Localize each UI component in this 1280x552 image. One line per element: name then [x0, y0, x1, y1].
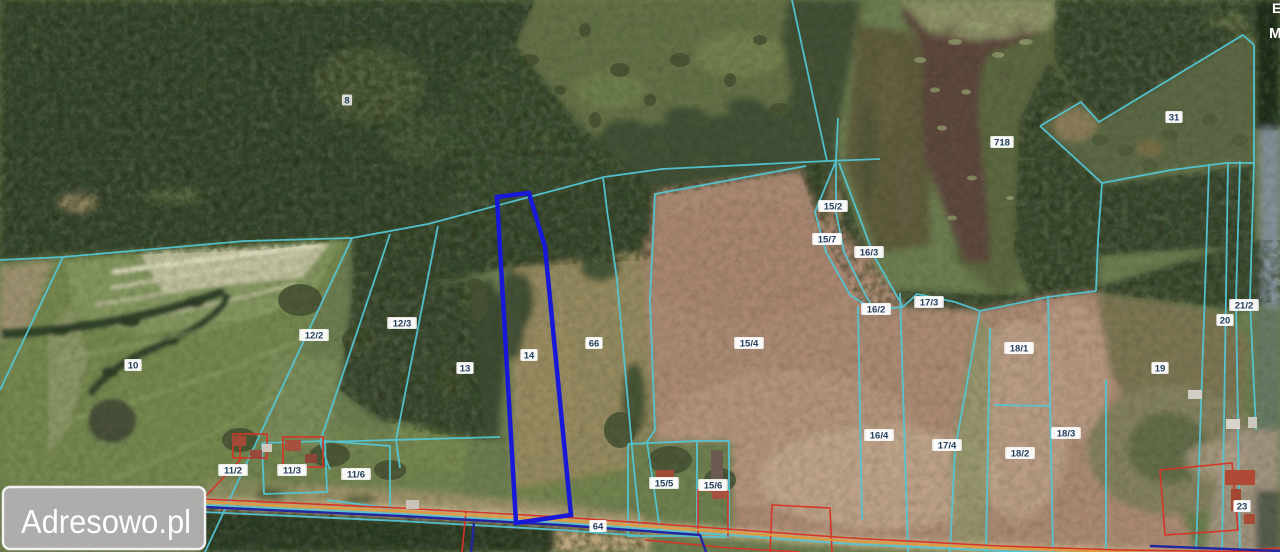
- svg-text:16/2: 16/2: [867, 305, 886, 316]
- svg-text:17/3: 17/3: [920, 298, 939, 309]
- svg-text:14: 14: [524, 351, 535, 362]
- svg-text:15/6: 15/6: [704, 481, 723, 492]
- svg-text:23: 23: [1237, 502, 1248, 513]
- svg-text:E: E: [1272, 0, 1280, 16]
- svg-text:16/3: 16/3: [860, 248, 879, 259]
- svg-text:18/1: 18/1: [1010, 344, 1029, 355]
- svg-text:17/4: 17/4: [938, 441, 957, 452]
- svg-text:19: 19: [1155, 364, 1166, 375]
- svg-text:21/2: 21/2: [1235, 301, 1254, 312]
- svg-text:15/7: 15/7: [818, 235, 837, 246]
- svg-text:31: 31: [1169, 113, 1180, 124]
- svg-text:11/3: 11/3: [283, 466, 301, 477]
- svg-text:12/3: 12/3: [393, 319, 412, 330]
- svg-text:12/2: 12/2: [305, 331, 324, 342]
- svg-text:20: 20: [1220, 316, 1231, 327]
- svg-text:718: 718: [994, 138, 1010, 149]
- svg-text:11/6: 11/6: [347, 470, 365, 481]
- svg-text:13: 13: [460, 364, 471, 375]
- svg-text:16/4: 16/4: [870, 431, 889, 442]
- svg-text:18/2: 18/2: [1011, 449, 1030, 460]
- svg-text:15/4: 15/4: [740, 339, 759, 350]
- svg-text:15/5: 15/5: [655, 479, 674, 490]
- svg-text:18/3: 18/3: [1057, 429, 1076, 440]
- svg-text:64: 64: [593, 522, 604, 533]
- svg-text:Adresowo.pl: Adresowo.pl: [21, 503, 191, 540]
- svg-text:11/2: 11/2: [224, 466, 242, 477]
- svg-text:66: 66: [589, 339, 600, 350]
- svg-text:15/2: 15/2: [824, 202, 843, 213]
- svg-text:10: 10: [128, 361, 139, 372]
- svg-text:8: 8: [344, 96, 349, 107]
- svg-text:M: M: [1269, 25, 1280, 42]
